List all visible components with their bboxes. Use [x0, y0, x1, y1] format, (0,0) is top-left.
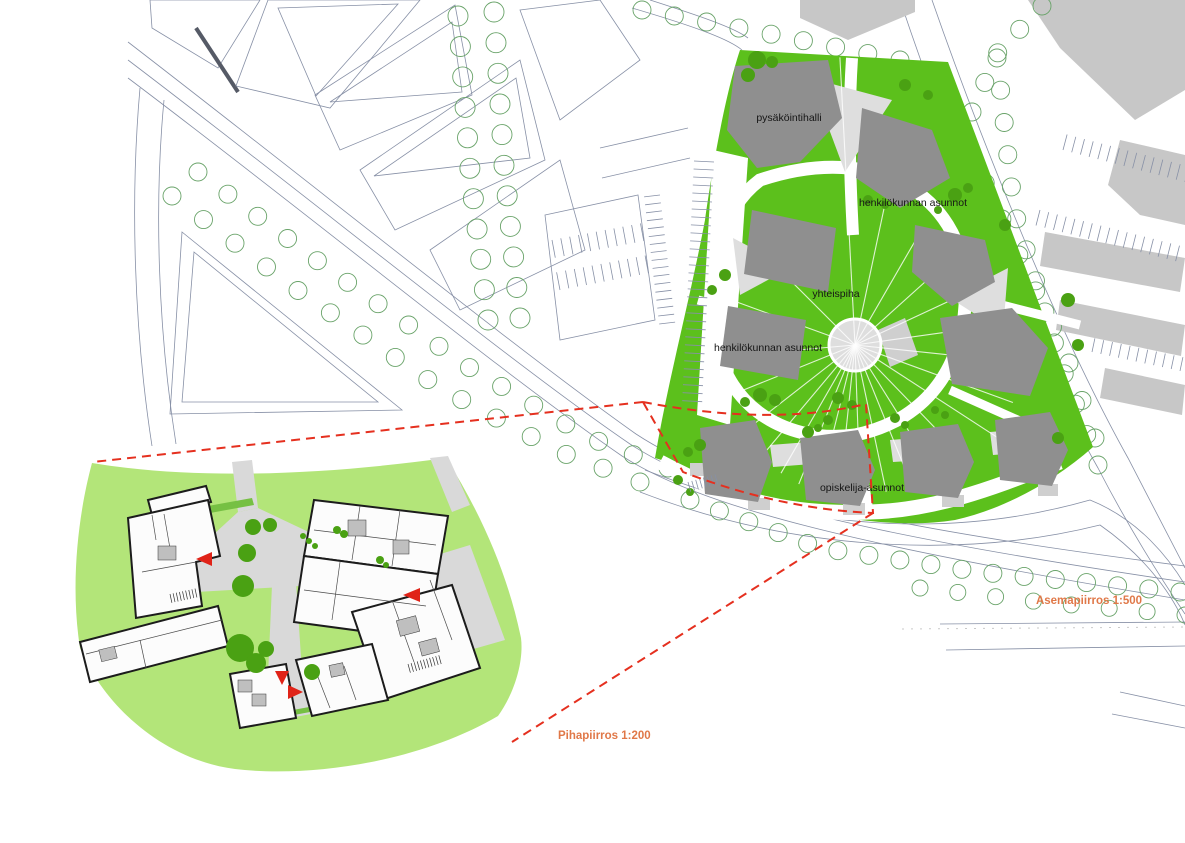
- drawing-svg: pysäköintihalli henkilökunnan asunnot yh…: [0, 0, 1185, 843]
- leader-line-bottom: [512, 513, 873, 742]
- label-staff-apartments-ne: henkilökunnan asunnot: [859, 197, 967, 209]
- site-plan-caption: Asemapiirros 1:500: [1036, 595, 1142, 607]
- courtyard-plan: [76, 456, 522, 771]
- architectural-drawing: pysäköintihalli henkilökunnan asunnot yh…: [0, 0, 1185, 843]
- label-shared-courtyard: yhteispiha: [812, 288, 859, 300]
- captions: Asemapiirros 1:500 Pihapiirros 1:200: [558, 595, 1142, 742]
- courtyard-plan-caption: Pihapiirros 1:200: [558, 730, 651, 742]
- label-parking-hall: pysäköintihalli: [756, 112, 821, 124]
- label-staff-apartments-w: henkilökunnan asunnot: [714, 342, 822, 354]
- label-student-apartments: opiskelija-asunnot: [820, 482, 904, 494]
- site-plan: pysäköintihalli henkilökunnan asunnot yh…: [655, 50, 1093, 523]
- leader-line-top: [93, 402, 643, 462]
